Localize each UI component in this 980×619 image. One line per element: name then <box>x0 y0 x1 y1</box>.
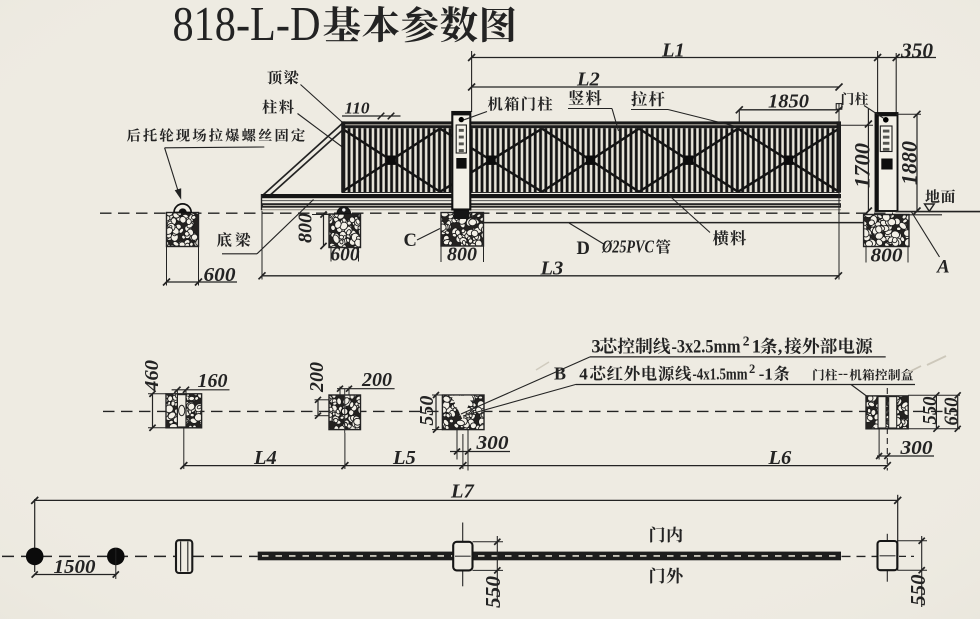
svg-text:A: A <box>936 257 950 278</box>
svg-text:L4: L4 <box>253 447 277 469</box>
svg-text:800: 800 <box>295 213 317 243</box>
svg-text:1: 1 <box>752 338 761 358</box>
svg-text:1700: 1700 <box>850 143 875 188</box>
svg-text:B: B <box>554 364 566 384</box>
svg-text:L7: L7 <box>450 481 475 503</box>
svg-text:300: 300 <box>475 432 508 454</box>
svg-text:D: D <box>577 239 590 259</box>
svg-text:818-L-D: 818-L-D <box>173 0 321 51</box>
svg-text:300: 300 <box>899 437 932 459</box>
svg-text:--: -- <box>838 367 848 382</box>
svg-text:550: 550 <box>920 396 941 424</box>
svg-text:L6: L6 <box>768 447 793 469</box>
svg-text:L2: L2 <box>576 69 600 91</box>
svg-text:Ø25PVC: Ø25PVC <box>601 237 655 257</box>
svg-text:L5: L5 <box>392 447 416 469</box>
svg-text:550: 550 <box>416 396 438 426</box>
svg-text:2: 2 <box>749 362 755 376</box>
svg-text:160: 160 <box>198 371 228 392</box>
svg-text:200: 200 <box>306 362 328 393</box>
svg-text:4: 4 <box>579 365 588 384</box>
svg-text:600: 600 <box>331 245 360 266</box>
svg-text:800: 800 <box>447 245 477 266</box>
svg-text:,: , <box>778 338 783 358</box>
svg-text:3: 3 <box>591 338 600 358</box>
svg-text:-1: -1 <box>759 365 773 384</box>
svg-text:1880: 1880 <box>897 141 922 185</box>
svg-text:L3: L3 <box>540 258 564 280</box>
svg-text:110: 110 <box>345 99 370 118</box>
svg-text:C: C <box>404 231 417 251</box>
svg-text:800: 800 <box>871 246 903 267</box>
svg-text:1850: 1850 <box>768 92 809 113</box>
svg-text:460: 460 <box>141 360 163 392</box>
svg-text:650: 650 <box>942 397 963 425</box>
svg-text:1500: 1500 <box>54 557 96 578</box>
svg-text:L1: L1 <box>661 40 685 62</box>
svg-text:200: 200 <box>361 370 392 391</box>
svg-text:550: 550 <box>906 574 930 605</box>
svg-text:550: 550 <box>481 576 505 608</box>
svg-text:350: 350 <box>900 39 934 63</box>
svg-text:-4x1.5mm: -4x1.5mm <box>693 365 748 384</box>
svg-text:600: 600 <box>204 264 236 286</box>
svg-text:2: 2 <box>743 334 750 349</box>
svg-text:-3x2.5mm: -3x2.5mm <box>672 338 742 358</box>
